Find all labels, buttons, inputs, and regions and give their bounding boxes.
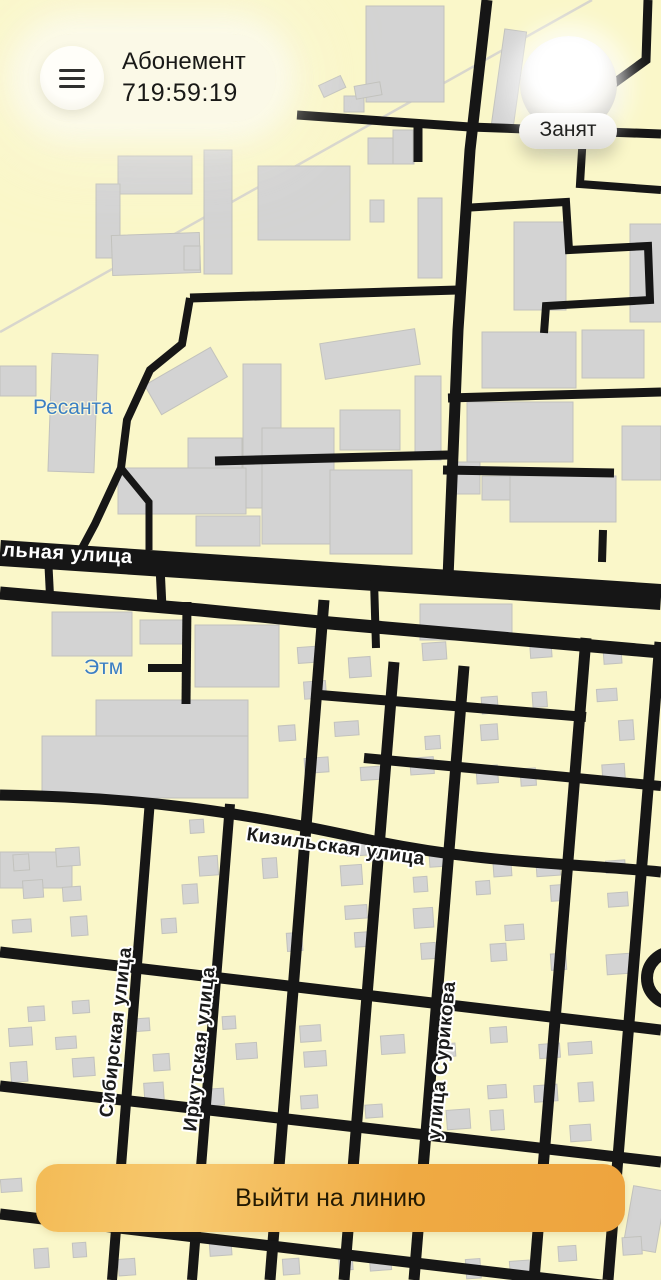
map-canvas[interactable]: Ресанта Этм льная улица Кизильская улица… <box>0 0 661 1280</box>
driver-map-screen: Ресанта Этм льная улица Кизильская улица… <box>0 0 661 1280</box>
subscription-timer: 719:59:19 <box>122 77 246 110</box>
subscription-info: Абонемент 719:59:19 <box>122 46 246 110</box>
hamburger-icon <box>59 85 85 88</box>
poi-label-resanta: Ресанта <box>33 396 113 419</box>
driver-status: Занят <box>505 36 631 149</box>
go-online-button[interactable]: Выйти на линию <box>36 1164 625 1232</box>
hamburger-icon <box>59 69 85 72</box>
menu-button[interactable] <box>40 46 104 110</box>
poi-label-etm: Этм <box>84 656 123 679</box>
subscription-title: Абонемент <box>122 46 246 77</box>
status-badge[interactable]: Занят <box>519 113 618 149</box>
hamburger-icon <box>59 77 85 80</box>
subscription-chip: Абонемент 719:59:19 <box>28 34 276 122</box>
